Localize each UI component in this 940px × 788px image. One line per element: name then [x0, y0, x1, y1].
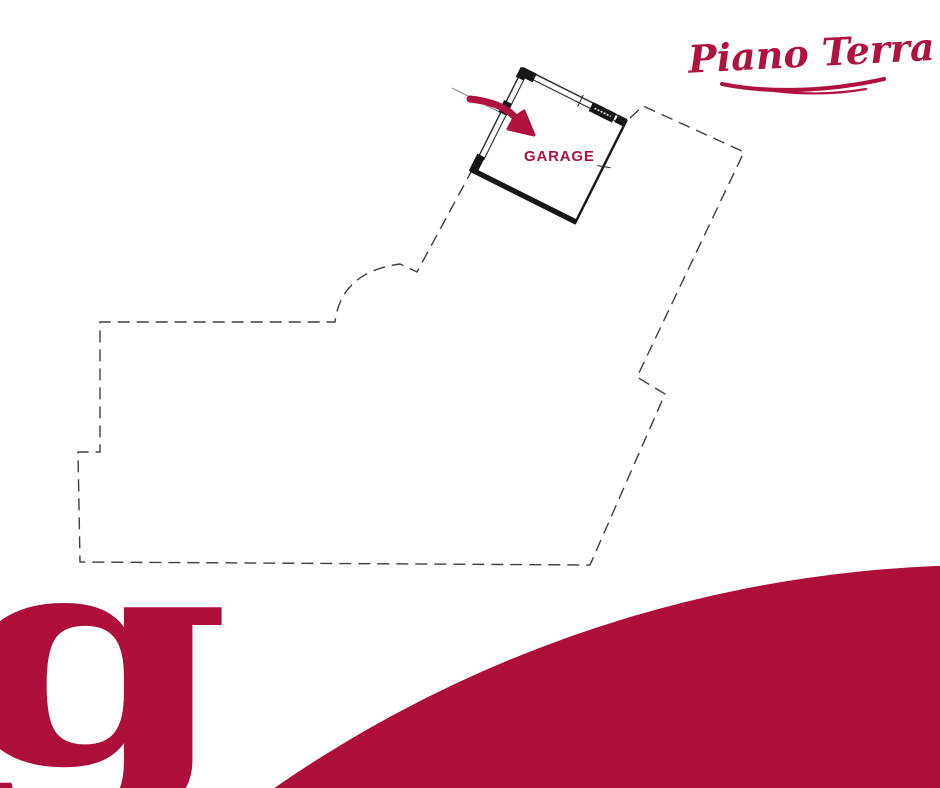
garage-floor: [471, 68, 627, 224]
flyer-canvas: Piano Terra: [0, 0, 940, 788]
garage-room: [469, 64, 634, 227]
garage-label: GARAGE: [524, 148, 595, 165]
brand-logo-letter-g: g: [0, 508, 231, 788]
